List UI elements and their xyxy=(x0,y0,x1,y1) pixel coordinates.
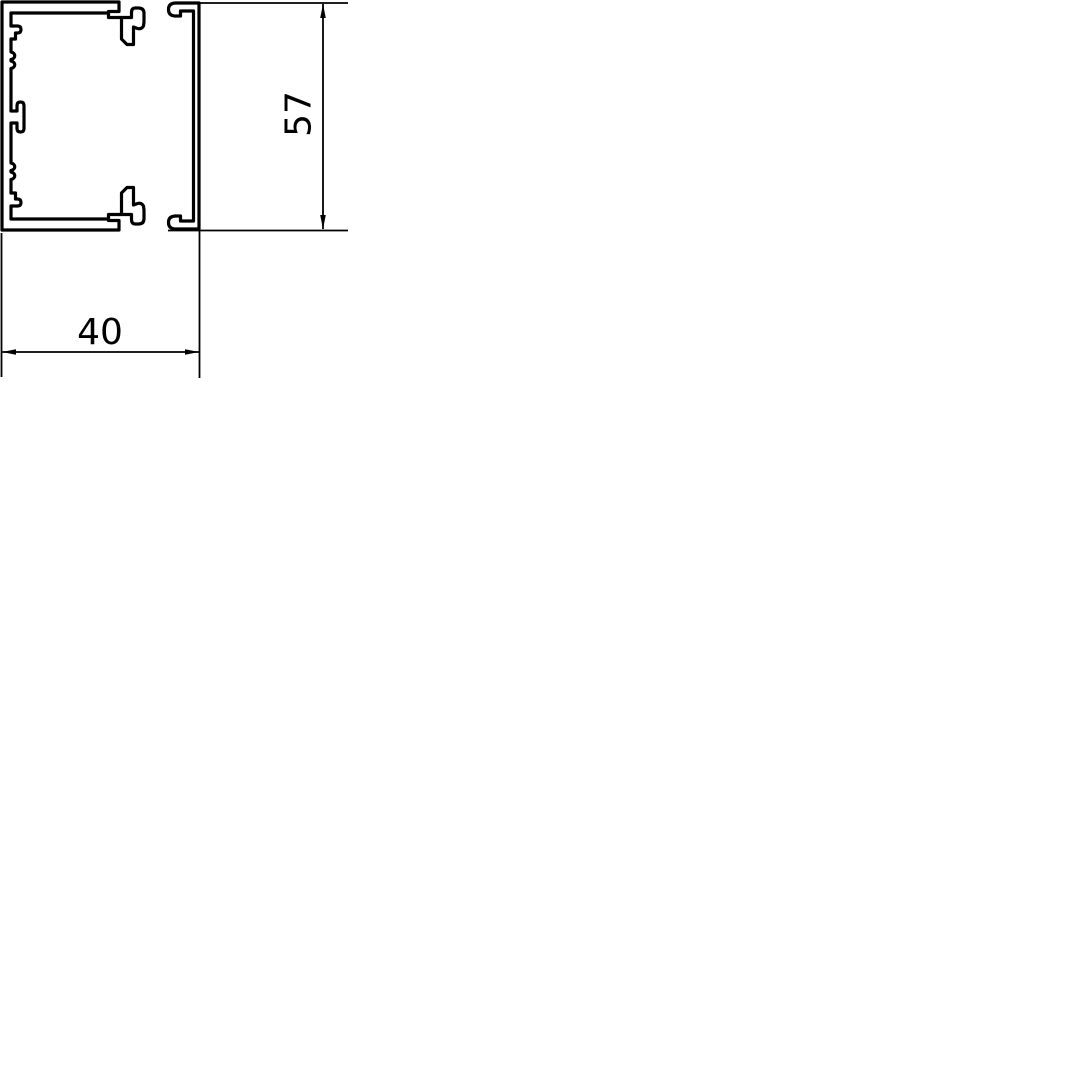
dimension-label-40: 40 xyxy=(77,312,123,353)
base-profile-outline xyxy=(2,2,119,230)
base-top-latch xyxy=(109,8,145,45)
drawing-canvas: 57 40 xyxy=(0,0,1080,1080)
base-bottom-latch xyxy=(109,188,145,225)
arrowhead-40-right-icon xyxy=(185,349,199,355)
dimension-label-57: 57 xyxy=(279,91,320,137)
arrowhead-40-left-icon xyxy=(2,349,16,355)
technical-drawing: 57 40 xyxy=(0,0,1080,1080)
cover-profile-outline xyxy=(169,3,200,229)
arrowhead-57-up-icon xyxy=(320,4,326,18)
arrowhead-57-down-icon xyxy=(320,215,326,229)
